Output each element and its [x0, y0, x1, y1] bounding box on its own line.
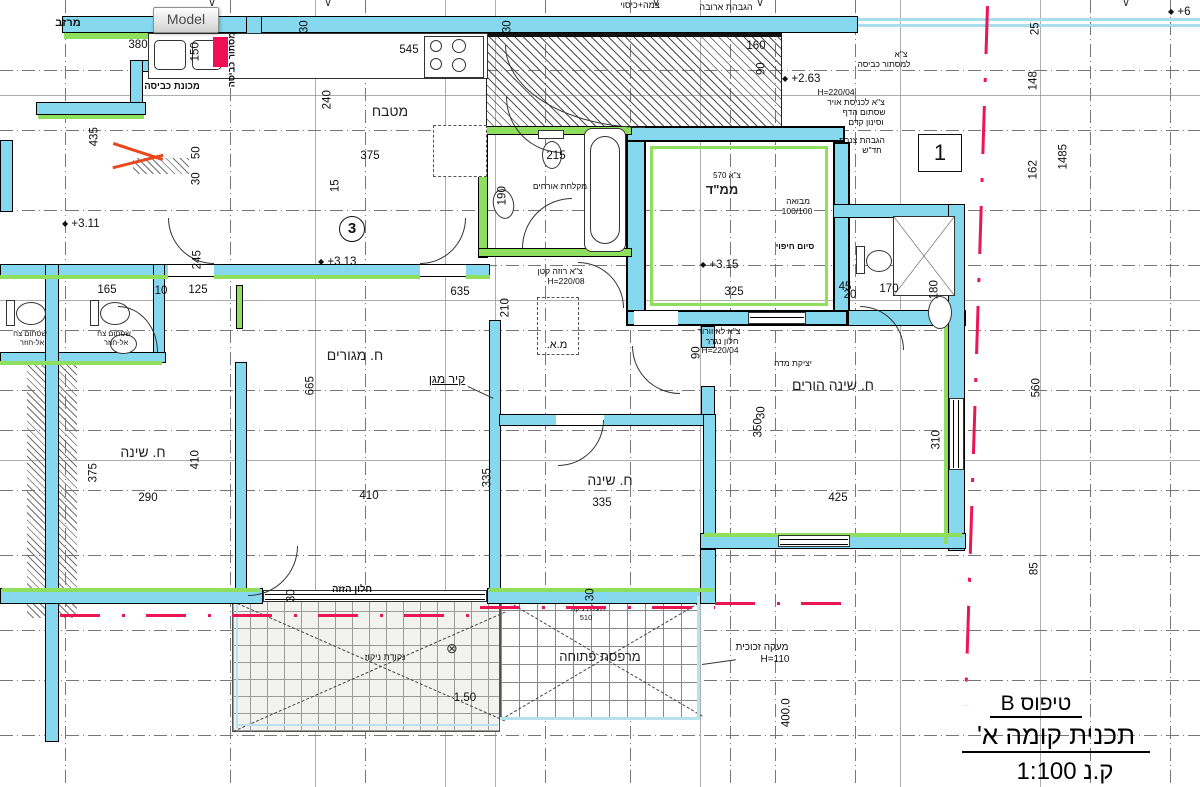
toilet-tank	[6, 300, 15, 326]
section-marker-icon: ∨	[1122, 0, 1130, 9]
window-line	[750, 317, 804, 318]
insulation-strip	[489, 588, 714, 592]
annotation-cladding: סיום חיפוי	[776, 242, 815, 251]
party-wall-hatch	[27, 362, 45, 618]
grid-line	[900, 0, 901, 787]
dim-label: 30	[191, 156, 203, 202]
grid-line	[0, 330, 1200, 331]
annotation-laundry-marker: צ"א	[895, 50, 908, 59]
elevation-marker-icon: ◆	[318, 257, 324, 266]
plot-boundary-line	[60, 614, 480, 617]
dim-label: 165	[84, 285, 130, 297]
dim-label: 30	[286, 573, 298, 619]
window-line	[265, 599, 485, 600]
dim-label: 665	[305, 363, 317, 409]
toilet	[866, 250, 892, 272]
dim-label: 210	[500, 285, 512, 331]
elevation-marker-icon: ◆	[700, 260, 706, 269]
wall	[0, 140, 13, 212]
grid-line	[1090, 0, 1091, 787]
dim-label: 545	[386, 45, 432, 57]
room-label-balcony: מרפסת פתוחה	[559, 649, 641, 664]
annotation-air1: H=220/04	[817, 88, 854, 97]
window	[778, 535, 850, 547]
dim-label: 380	[115, 40, 161, 52]
plot-boundary-line	[964, 6, 989, 706]
cad-canvas: 380 150 545 30 30 240 435 50 30 375 15 2…	[0, 0, 1200, 787]
mamad-wall	[626, 126, 845, 142]
party-wall-hatch	[59, 362, 77, 618]
window-line	[780, 539, 848, 540]
door-opening	[420, 265, 466, 276]
insulation-strip	[944, 312, 948, 544]
dim-label: 25	[1030, 6, 1042, 52]
grid-line	[230, 0, 231, 787]
window	[949, 398, 964, 470]
annotation-air4: וסינון קדם	[848, 118, 883, 127]
bathtub-inner	[590, 136, 620, 244]
toilet-tank	[856, 246, 865, 274]
annotation-drain-point: נקודת ניקוז	[365, 653, 406, 662]
insulation-strip	[0, 361, 162, 365]
annotation-glass-railing: מעקה זכוכית	[735, 643, 788, 654]
elevation-marker-icon: ◆	[1168, 7, 1174, 16]
plan-name-title: תכנית קומה א'	[962, 720, 1150, 753]
plan-type-title: טיפוס B	[990, 692, 1082, 718]
dim-label: 20	[827, 290, 873, 302]
toilet	[16, 302, 46, 325]
dim-label: 85	[1029, 546, 1041, 592]
mamad-wall	[626, 126, 646, 318]
railing-line	[236, 604, 238, 728]
room-label-bedroom1: ח. שינה	[120, 444, 165, 460]
section-marker-icon: ∨	[324, 0, 332, 9]
annotation-laundry-machine: מכונת כביסה	[144, 82, 200, 92]
elevation-mark: ◆ +2.63	[782, 73, 820, 85]
annotation-pipes2: חד"ש	[862, 146, 882, 155]
glass-railing	[500, 717, 700, 720]
dim-label: 410	[346, 491, 392, 503]
dim-label: 162	[1028, 147, 1040, 193]
insulation-strip	[214, 275, 420, 279]
dim-label: 90	[756, 46, 768, 92]
wall	[499, 414, 716, 426]
burner	[452, 39, 466, 53]
railing-line	[236, 724, 498, 726]
dim-label: 335	[482, 455, 494, 501]
dim-label: 150	[190, 29, 202, 75]
annotation-roza2: H=220/08	[547, 277, 584, 286]
elevation-mark: ◆ +6	[1168, 6, 1190, 18]
dim-label: 325	[711, 287, 757, 299]
insulation-strip	[466, 275, 490, 279]
dim-label: 215	[533, 151, 579, 163]
mamad-window	[748, 312, 806, 324]
dim-label: 190	[497, 173, 509, 219]
annotation-drain-channel-size: 510	[580, 614, 593, 622]
plot-boundary-line	[715, 602, 863, 605]
room-label-bedroom2: ח. שינה	[587, 472, 632, 488]
annotation-chimney: הגבהת ארובה	[699, 3, 752, 12]
annotation-guest-bath: מקלחת אורחים	[533, 182, 587, 191]
room-label-parents: ח. שינה הורים	[792, 377, 874, 393]
dim-label: 400.0	[781, 690, 793, 736]
dim-label: 375	[88, 450, 100, 496]
grid-bubble-3: 3	[339, 216, 365, 242]
door-arc	[632, 346, 680, 394]
annotation-glass-railing-height: H=110	[760, 655, 789, 666]
annotation-mamad-tag: צ"א 570	[713, 172, 741, 180]
annotation-vent3: H=220/04	[701, 346, 738, 355]
drain-icon: ⊗	[446, 640, 458, 657]
window-line	[780, 544, 848, 545]
grid-line	[0, 390, 1200, 391]
window-line	[265, 594, 485, 595]
grid-line	[0, 555, 1200, 556]
annotation-vent1: צ"א לאיוורור	[697, 327, 740, 336]
annotation-lobby: מבואה	[786, 197, 810, 206]
glass-railing	[697, 596, 700, 720]
detail-box-1: 1	[918, 134, 962, 172]
dim-label: 240	[322, 77, 334, 123]
plot-boundary-line	[480, 606, 715, 609]
section-marker-icon: ∨	[652, 0, 660, 9]
annotation-valve: אל-חוזר	[104, 339, 128, 347]
dim-label: 180	[929, 267, 941, 313]
burner	[452, 58, 466, 72]
dim-label: 15	[330, 163, 342, 209]
dim-label: 410	[190, 437, 202, 483]
annotation-laundry-screen: מסתור כביסה	[227, 32, 236, 87]
balcony-tiles-left	[232, 600, 500, 732]
dim-label: 1485	[1058, 134, 1070, 180]
dim-label: 435	[89, 114, 101, 160]
annotation-gutter: מרזב	[55, 18, 80, 30]
grid-line	[0, 490, 1200, 491]
room-label-living: ח. מגורים	[327, 347, 384, 363]
elevation-mark: ◆ +3.15	[700, 259, 738, 271]
grid-line	[1170, 0, 1171, 787]
annotation-sliding-window: חלון הזזה	[332, 585, 372, 595]
model-tab[interactable]: Model	[153, 7, 219, 33]
dim-label: 125	[175, 285, 221, 297]
door-arc	[578, 262, 624, 308]
insulation-strip	[2, 588, 260, 592]
elevation-mark: ◆ +3.11	[62, 218, 100, 230]
dim-label: 635	[437, 287, 483, 299]
annotation-pipes1: הגבהת צנרת	[839, 136, 885, 145]
room-label-mamad: ממ"ד	[706, 182, 739, 197]
plan-scale: ק.נ 1:100	[990, 758, 1140, 786]
annotation-air3: שסתום הדף	[842, 108, 885, 117]
elevation-marker-icon: ◆	[62, 219, 68, 228]
insulation-strip	[0, 275, 168, 279]
dim-label: 1.50	[442, 693, 488, 705]
dim-label: 30	[502, 4, 514, 50]
elevation-marker-icon: ◆	[782, 74, 788, 83]
section-marker-icon: ∨	[756, 0, 764, 9]
room-label-kitchen: מטבח	[372, 103, 408, 119]
wall	[700, 549, 716, 604]
annotation-valve: אל-חוזר	[20, 339, 44, 347]
window-line	[958, 400, 959, 468]
annotation-ac: מ.א.	[547, 340, 568, 352]
dim-label: 375	[347, 151, 393, 163]
dim-label: 245	[192, 237, 204, 283]
door-arc	[506, 97, 562, 153]
dim-label: 290	[125, 493, 171, 505]
annotation-screed: יציקת מדה	[774, 359, 812, 368]
annotation-protective-wall: קיר מגן	[429, 373, 465, 386]
annotation-valve: שסתום צח	[13, 330, 47, 338]
toilet-tank	[90, 300, 99, 326]
annotation-lobby-size: 100/100	[782, 207, 813, 216]
burner	[430, 58, 442, 70]
mamad-inner-lining	[650, 146, 828, 306]
wall	[235, 362, 247, 590]
dim-label: 148	[1028, 58, 1040, 104]
annotation-laundry-line: למסתור כביסה	[857, 60, 910, 69]
dim-label: 30	[299, 4, 311, 50]
elevation-mark: ◆ +3.13	[318, 256, 356, 268]
dim-label: 425	[815, 493, 861, 505]
grid-line	[0, 460, 1200, 461]
window-line	[953, 400, 954, 468]
dim-label: 30	[756, 390, 768, 436]
annotation-roza1: צ"א רוזה קטן	[537, 267, 582, 276]
highlight-marker	[213, 37, 228, 67]
kitchen-island	[433, 125, 487, 177]
door-arc	[420, 218, 466, 264]
door-arc	[522, 198, 572, 248]
dim-label: 335	[579, 498, 625, 510]
dim-label: 560	[1031, 365, 1043, 411]
annotation-air2: צ"א לכניסת אויר	[827, 98, 885, 107]
door-opening	[634, 311, 678, 325]
upper-floor-line	[858, 18, 1200, 21]
wall	[703, 414, 716, 550]
dim-label: 310	[931, 417, 943, 463]
wall-stub	[236, 285, 243, 329]
annotation-valve: שסתום צח	[97, 330, 131, 338]
